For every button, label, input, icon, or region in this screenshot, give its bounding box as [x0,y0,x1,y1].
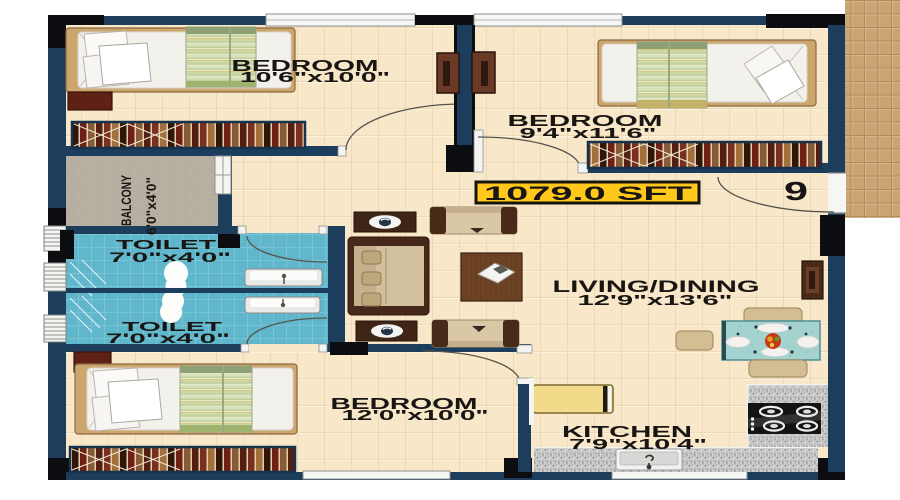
svg-text:7'9"x10'4": 7'9"x10'4" [569,436,707,453]
svg-text:6'0"x4'0": 6'0"x4'0" [143,177,159,235]
svg-text:7'0"x4'0": 7'0"x4'0" [109,249,231,265]
svg-text:BALCONY: BALCONY [118,175,134,226]
svg-text:7'0"x4'0": 7'0"x4'0" [106,330,230,346]
svg-text:12'9"x13'6": 12'9"x13'6" [578,292,733,309]
svg-text:1079.0 SFT: 1079.0 SFT [484,183,692,205]
svg-text:9: 9 [784,176,808,206]
svg-text:9'4"x11'6": 9'4"x11'6" [520,125,657,142]
svg-text:10'6"x10'0": 10'6"x10'0" [240,69,390,86]
svg-text:12'0"x10'0": 12'0"x10'0" [342,407,489,424]
